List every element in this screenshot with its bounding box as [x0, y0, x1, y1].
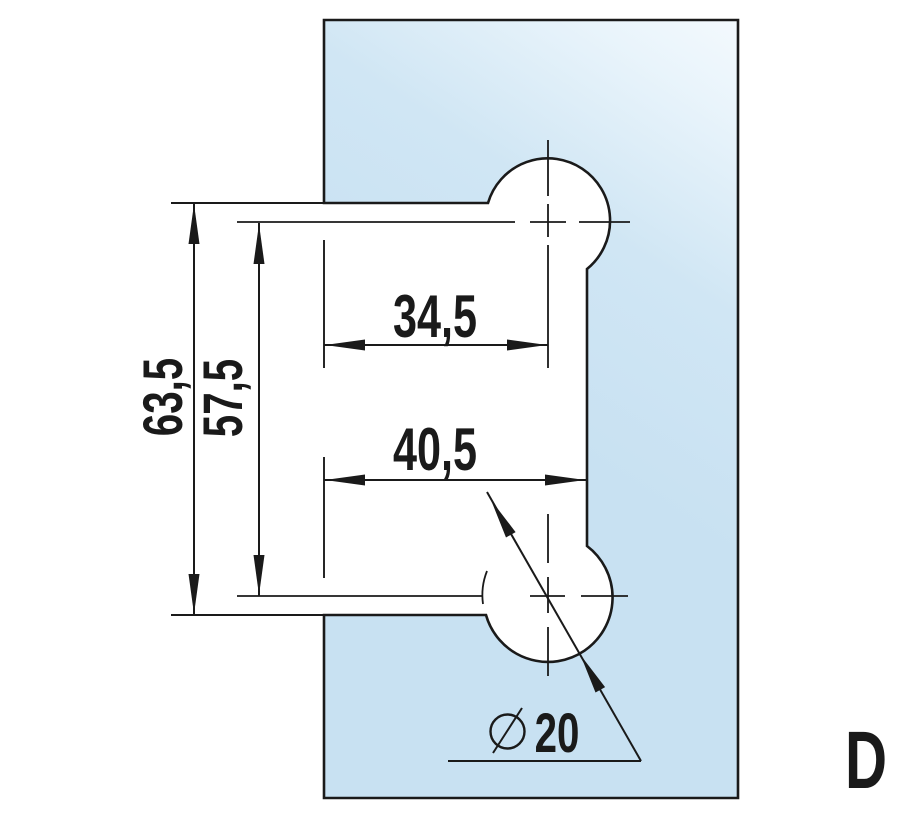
dim-hole-spacing: 57,5 [193, 223, 265, 596]
bottom-hole-arc-fragment [482, 571, 487, 604]
variant-label: D [845, 715, 887, 806]
arrow-right-icon [507, 340, 547, 351]
glass-panel [324, 20, 738, 798]
arrow-down-icon [189, 574, 200, 614]
arrow-up-icon [189, 204, 200, 244]
arrow-up-icon [254, 224, 265, 264]
dim-hole-spacing-label: 57,5 [193, 359, 255, 437]
arrow-left-icon [325, 340, 365, 351]
hole-diameter-label: 20 [535, 703, 580, 765]
hinge-drilling-diagram: 63,5 57,5 34,5 [0, 0, 909, 820]
dim-bottom-hole-offset-label: 40,5 [393, 417, 477, 484]
dim-overall-height-label: 63,5 [133, 358, 195, 436]
leader-arrow-icon [491, 500, 516, 538]
arrow-left-icon [325, 475, 365, 486]
arrow-down-icon [254, 555, 265, 595]
dim-bottom-hole-offset: 40,5 [324, 417, 586, 578]
dim-top-hole-offset-label: 34,5 [393, 284, 477, 351]
dim-top-hole-offset: 34,5 [324, 240, 548, 368]
technical-drawing-canvas: 63,5 57,5 34,5 [0, 0, 909, 820]
arrow-right-icon [545, 475, 585, 486]
